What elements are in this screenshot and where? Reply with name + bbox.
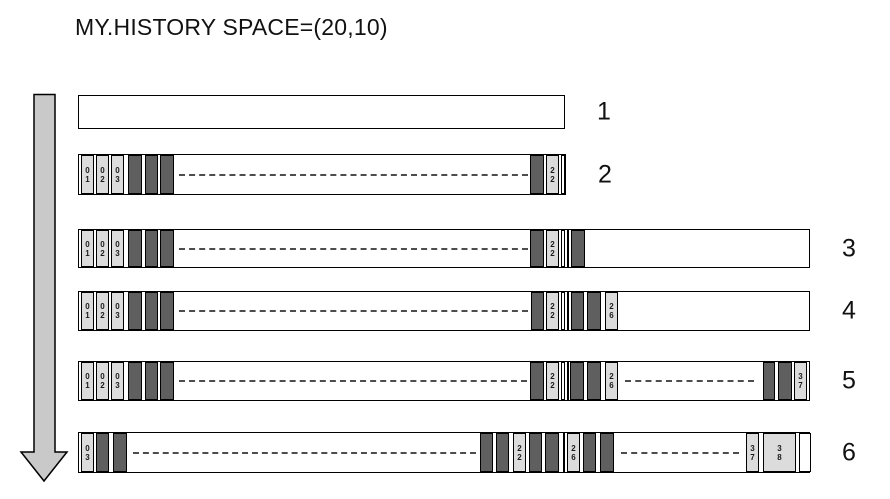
used-block-cell bbox=[587, 362, 601, 400]
used-block-cell bbox=[583, 433, 596, 472]
extent-divider bbox=[567, 362, 569, 400]
extent-bar-3: 0 10 20 32 2 bbox=[78, 229, 810, 268]
used-block-cell bbox=[145, 292, 158, 330]
used-block-cell bbox=[570, 362, 584, 400]
block-cell-22: 2 2 bbox=[546, 230, 559, 267]
dashed-span bbox=[179, 248, 528, 250]
used-block-cell bbox=[545, 433, 559, 472]
used-block-cell bbox=[531, 292, 544, 330]
used-block-cell bbox=[145, 362, 158, 400]
used-block-cell bbox=[571, 230, 585, 267]
extent-divider bbox=[567, 292, 569, 330]
dashed-span bbox=[133, 452, 476, 454]
dashed-span bbox=[621, 452, 739, 454]
dashed-span bbox=[179, 310, 528, 312]
block-cell-02: 0 2 bbox=[96, 292, 109, 330]
used-block-cell bbox=[160, 230, 174, 267]
block-cell-38: 3 8 bbox=[763, 433, 796, 472]
used-block-cell bbox=[530, 155, 544, 194]
block-cell-03: 0 3 bbox=[111, 292, 124, 330]
block-cell-01: 0 1 bbox=[81, 292, 94, 330]
free-block-cell bbox=[561, 362, 565, 400]
used-block-cell bbox=[160, 362, 174, 400]
used-block-cell bbox=[128, 292, 142, 330]
row-number-label: 2 bbox=[598, 160, 612, 189]
used-block-cell bbox=[600, 433, 614, 472]
block-cell-22: 2 2 bbox=[546, 292, 559, 330]
free-block-cell bbox=[561, 155, 565, 194]
used-block-cell bbox=[530, 230, 544, 267]
used-block-cell bbox=[113, 433, 127, 472]
used-block-cell bbox=[480, 433, 493, 472]
block-cell-03: 0 3 bbox=[111, 230, 124, 267]
block-cell-22: 2 2 bbox=[513, 433, 526, 472]
block-cell-03: 0 3 bbox=[81, 433, 94, 472]
used-block-cell bbox=[778, 362, 792, 400]
row-number-label: 5 bbox=[842, 367, 856, 396]
dashed-span bbox=[625, 380, 754, 382]
block-cell-26: 2 6 bbox=[605, 362, 618, 400]
used-block-cell bbox=[128, 230, 142, 267]
block-cell-02: 0 2 bbox=[96, 362, 109, 400]
free-block-cell bbox=[799, 433, 811, 472]
block-cell-01: 0 1 bbox=[81, 155, 94, 194]
allocation-diagram: 10 10 20 32 220 10 20 32 230 10 20 32 22… bbox=[0, 0, 890, 499]
dashed-span bbox=[179, 380, 527, 382]
diagram-page: MY.HISTORY SPACE=(20,10) 10 10 20 32 220… bbox=[0, 0, 890, 499]
extent-bar-2: 0 10 20 32 2 bbox=[78, 154, 566, 195]
block-cell-37: 3 7 bbox=[794, 362, 807, 400]
used-block-cell bbox=[145, 155, 158, 194]
used-block-cell bbox=[145, 230, 158, 267]
used-block-cell bbox=[763, 362, 775, 400]
used-block-cell bbox=[128, 362, 142, 400]
extent-divider bbox=[563, 433, 565, 472]
row-number-label: 1 bbox=[597, 98, 611, 127]
used-block-cell bbox=[128, 155, 142, 194]
extent-bar-5: 0 10 20 32 22 63 7 bbox=[78, 361, 810, 401]
block-cell-02: 0 2 bbox=[96, 230, 109, 267]
extent-bar-6: 0 32 22 63 73 8 bbox=[78, 432, 810, 473]
row-number-label: 3 bbox=[842, 234, 856, 263]
block-cell-03: 0 3 bbox=[111, 362, 124, 400]
block-cell-22: 2 2 bbox=[546, 362, 559, 400]
used-block-cell bbox=[496, 433, 509, 472]
block-cell-01: 0 1 bbox=[81, 230, 94, 267]
dashed-span bbox=[179, 174, 528, 176]
block-cell-26: 2 6 bbox=[567, 433, 580, 472]
block-cell-01: 0 1 bbox=[81, 362, 94, 400]
used-block-cell bbox=[571, 292, 584, 330]
free-block-cell bbox=[561, 230, 565, 267]
free-block-cell bbox=[561, 292, 565, 330]
used-block-cell bbox=[529, 433, 542, 472]
row-number-label: 4 bbox=[842, 297, 856, 326]
block-cell-03: 0 3 bbox=[111, 155, 124, 194]
block-cell-37: 3 7 bbox=[746, 433, 759, 472]
extent-bar-1 bbox=[78, 95, 565, 129]
block-cell-02: 0 2 bbox=[96, 155, 109, 194]
row-number-label: 6 bbox=[842, 438, 856, 467]
used-block-cell bbox=[96, 433, 109, 472]
used-block-cell bbox=[160, 155, 174, 194]
extent-bar-4: 0 10 20 32 22 6 bbox=[78, 291, 810, 331]
used-block-cell bbox=[587, 292, 601, 330]
extent-divider bbox=[567, 230, 569, 267]
used-block-cell bbox=[530, 362, 544, 400]
block-cell-26: 2 6 bbox=[605, 292, 618, 330]
block-cell-22: 2 2 bbox=[546, 155, 559, 194]
used-block-cell bbox=[160, 292, 174, 330]
